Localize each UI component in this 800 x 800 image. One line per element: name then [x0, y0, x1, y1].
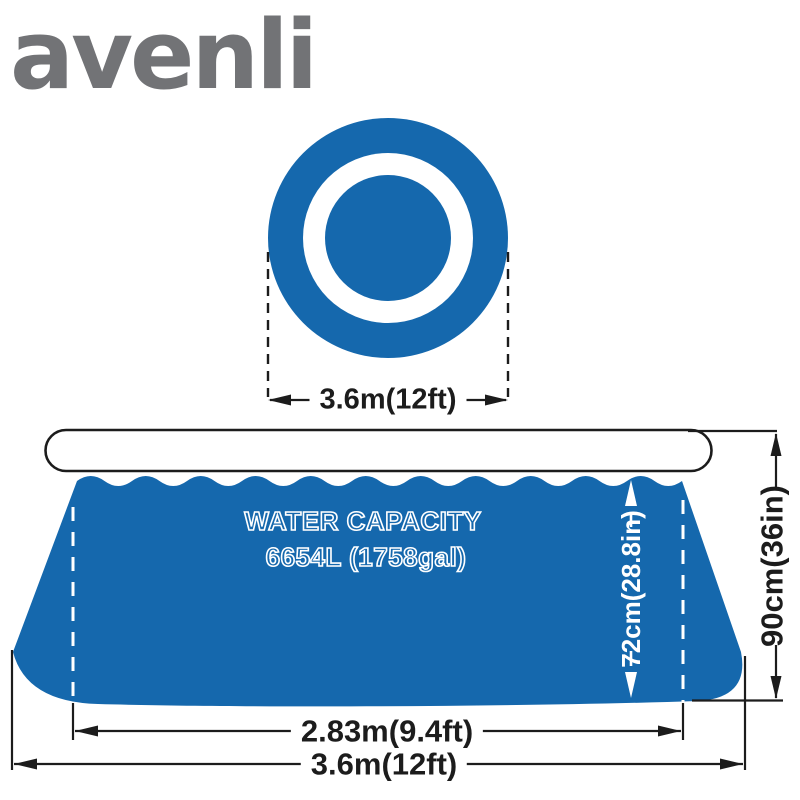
water-height-label: 72cm(28.8in): [618, 510, 644, 668]
arrow-right-icon: [720, 759, 743, 770]
top-diameter-label: 3.6m(12ft): [310, 386, 467, 415]
arrow-left-icon: [75, 726, 98, 737]
inflatable-top-ring: [46, 430, 712, 471]
arrow-down-icon: [771, 676, 782, 699]
arrow-right-icon: [658, 726, 681, 737]
base-diameter-label: 2.83m(9.4ft): [291, 716, 483, 747]
water-capacity-title: WATER CAPACITY: [244, 508, 481, 534]
wall-height-label: 90cm(36in): [757, 485, 788, 647]
bottom-diameter-label: 3.6m(12ft): [301, 749, 467, 780]
water-capacity-value: 6654L (1758gal): [266, 544, 467, 570]
arrow-right-icon: [485, 395, 508, 406]
pool-dimensions-diagram: avenli: [0, 0, 800, 800]
pool-top-view: [268, 118, 508, 358]
pool-water-center: [325, 175, 451, 301]
arrow-left-icon: [14, 759, 37, 770]
arrow-left-icon: [268, 395, 291, 406]
